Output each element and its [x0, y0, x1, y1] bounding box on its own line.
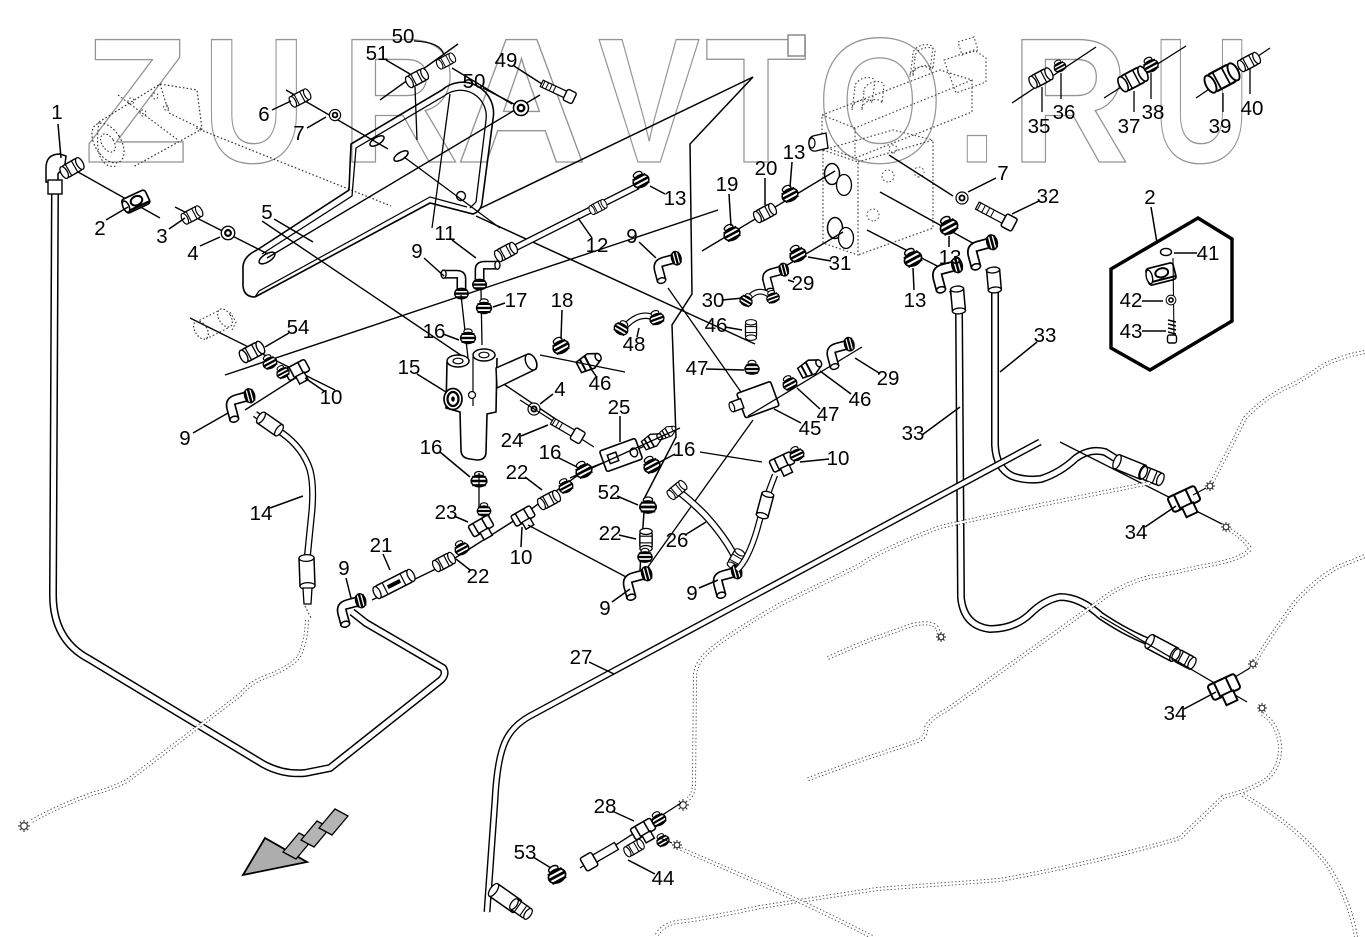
svg-text:U: U [1153, 1, 1250, 200]
svg-text:Z: Z [84, 1, 188, 200]
svg-text:24: 24 [501, 429, 524, 452]
svg-text:40: 40 [1241, 97, 1264, 120]
svg-text:9: 9 [338, 557, 349, 580]
svg-text:10: 10 [510, 546, 533, 569]
svg-text:22: 22 [467, 565, 490, 588]
svg-text:46: 46 [705, 314, 728, 337]
svg-text:16: 16 [673, 438, 696, 461]
svg-text:41: 41 [1197, 242, 1220, 265]
svg-text:17: 17 [505, 289, 528, 312]
svg-text:9: 9 [179, 427, 190, 450]
svg-text:7: 7 [997, 162, 1008, 185]
svg-text:19: 19 [716, 173, 739, 196]
svg-text:23: 23 [435, 501, 458, 524]
svg-text:52: 52 [598, 481, 621, 504]
svg-text:V: V [598, 1, 700, 200]
svg-text:9: 9 [599, 597, 610, 620]
svg-text:16: 16 [539, 441, 562, 464]
svg-text:9: 9 [686, 582, 697, 605]
svg-text:34: 34 [1164, 702, 1187, 725]
svg-text:16: 16 [420, 436, 443, 459]
svg-text:2: 2 [94, 217, 105, 240]
svg-text:50: 50 [392, 25, 415, 48]
svg-text:4: 4 [554, 378, 565, 401]
svg-text:4: 4 [187, 242, 198, 265]
svg-text:22: 22 [599, 522, 622, 545]
svg-text:12: 12 [586, 234, 609, 257]
svg-text:29: 29 [792, 272, 815, 295]
svg-text:18: 18 [551, 289, 574, 312]
svg-text:51: 51 [366, 42, 389, 65]
svg-text:43: 43 [1120, 320, 1143, 343]
svg-text:53: 53 [514, 841, 537, 864]
svg-text:46: 46 [849, 388, 872, 411]
svg-text:50: 50 [463, 70, 486, 93]
svg-text:14: 14 [250, 502, 273, 525]
svg-text:38: 38 [1142, 101, 1165, 124]
svg-text:2: 2 [1144, 186, 1155, 209]
svg-text:16: 16 [423, 320, 446, 343]
svg-text:1: 1 [51, 101, 62, 124]
svg-text:3: 3 [156, 225, 167, 248]
svg-text:42: 42 [1120, 289, 1143, 312]
svg-text:29: 29 [877, 367, 900, 390]
svg-text:37: 37 [1118, 115, 1141, 138]
svg-text:.: . [958, 1, 996, 200]
svg-text:28: 28 [594, 795, 617, 818]
svg-text:10: 10 [320, 386, 343, 409]
svg-text:44: 44 [652, 867, 675, 890]
svg-text:26: 26 [666, 529, 689, 552]
svg-text:22: 22 [506, 461, 529, 484]
svg-text:6: 6 [258, 103, 269, 126]
svg-text:20: 20 [755, 157, 778, 180]
svg-text:36: 36 [1053, 101, 1076, 124]
svg-text:7: 7 [293, 122, 304, 145]
svg-text:5: 5 [261, 201, 272, 224]
svg-text:35: 35 [1028, 115, 1051, 138]
svg-text:54: 54 [287, 316, 310, 339]
svg-text:13: 13 [783, 141, 806, 164]
svg-text:34: 34 [1125, 521, 1148, 544]
svg-text:49: 49 [495, 49, 518, 72]
svg-text:25: 25 [608, 396, 631, 419]
svg-text:15: 15 [398, 356, 421, 379]
svg-text:13: 13 [664, 187, 687, 210]
svg-text:13: 13 [939, 246, 962, 269]
svg-text:21: 21 [370, 534, 393, 557]
svg-text:9: 9 [626, 225, 637, 248]
svg-text:13: 13 [904, 289, 927, 312]
svg-text:48: 48 [623, 333, 646, 356]
svg-text:9: 9 [411, 240, 422, 263]
svg-text:31: 31 [829, 252, 852, 275]
svg-text:39: 39 [1209, 115, 1232, 138]
svg-text:27: 27 [570, 646, 593, 669]
svg-text:47: 47 [686, 357, 709, 380]
svg-text:10: 10 [827, 447, 850, 470]
svg-text:30: 30 [702, 289, 725, 312]
svg-text:11: 11 [434, 222, 455, 245]
svg-text:33: 33 [902, 422, 925, 445]
svg-text:33: 33 [1034, 324, 1057, 347]
svg-text:46: 46 [589, 372, 612, 395]
svg-text:47: 47 [817, 403, 840, 426]
svg-text:32: 32 [1037, 185, 1060, 208]
